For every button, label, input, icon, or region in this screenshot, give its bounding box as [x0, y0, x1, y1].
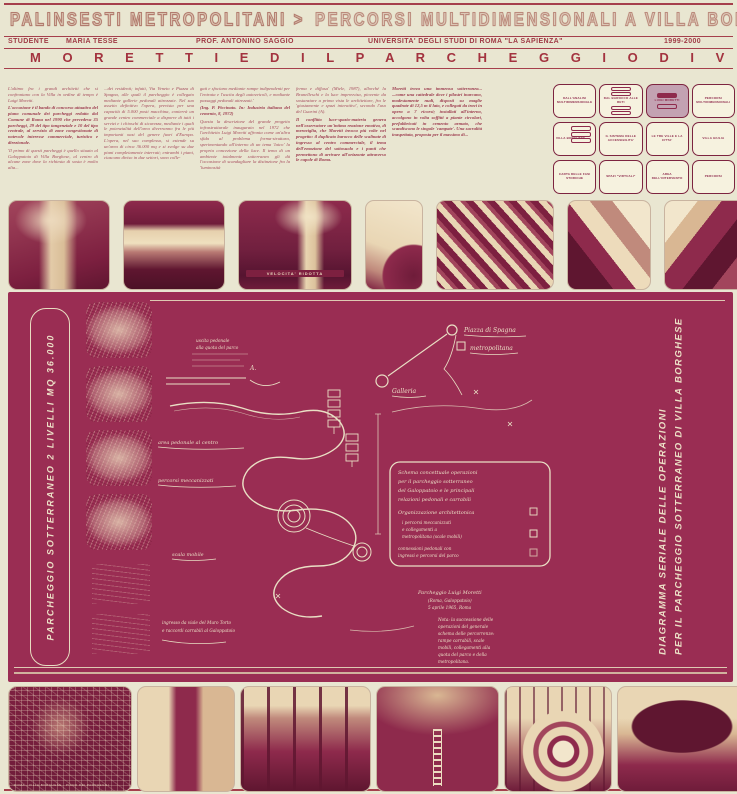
- photo-escalator-diagonal: [567, 200, 651, 290]
- paragraph: gati e sfociano mediante rampe indipende…: [200, 86, 290, 103]
- label-uscita-2: alla quota del parco: [196, 345, 239, 350]
- note-line: 5 aprile 1965, Roma: [428, 605, 472, 610]
- universita: UNIVERSITA' DEGLI STUDI DI ROMA "LA SAPI…: [368, 38, 563, 45]
- grid-cell-label: CARTA DELLE FASI STORICHE: [556, 173, 593, 180]
- grid-cell-label: SPAZI "VIRTUALI": [606, 175, 635, 179]
- note-line: rampe carrabili, scale: [438, 638, 485, 643]
- underline-squiggle: [392, 396, 426, 398]
- grid-cell-spazi-virtuali: SPAZI "VIRTUALI": [599, 160, 642, 194]
- left-vertical-text: PARCHEGGIO SOTTERRANEO 2 LIVELLI MQ 36.0…: [45, 334, 55, 641]
- right-vertical-label: DIAGRAMMA SERIALE DELLE OPERAZIONI PER I…: [655, 306, 689, 666]
- photo-strip-bottom: ROMA · VILLA BORGHESE · PIANO DEI PARCHE…: [8, 686, 737, 790]
- grid-cell-percorsi: PERCORSI: [692, 160, 735, 194]
- operations-diagram: Piazza di Spagna metropolitana Galleria …: [156, 294, 634, 678]
- legend-line: relazioni pedonali e carrabili: [398, 497, 471, 503]
- node-piazza-di-spagna: [447, 325, 457, 335]
- paragraph: 'Il primo di questi parcheggi è quello s…: [8, 148, 98, 171]
- link-path: [306, 528, 354, 546]
- legend-line: per il parcheggio sotterraneo: [398, 479, 473, 485]
- map-caption: ROMA · VILLA BORGHESE · PIANO DEI PARCHE…: [14, 783, 126, 787]
- meta-row: STUDENTE MARIA TESSE PROF. ANTONINO SAGG…: [0, 38, 737, 48]
- poster-title: PALINSESTI METROPOLITANI > PERCORSI MULT…: [10, 9, 729, 30]
- grid-cell-villa-borghese: VILLA BORGHESE: [553, 122, 596, 156]
- legend-swatch-outline: [530, 508, 537, 515]
- studente-name: MARIA TESSE: [66, 38, 118, 45]
- paragraph: Questa la descrizione del grande progett…: [200, 119, 290, 171]
- note-line: Parcheggio Luigi Moretti: [417, 590, 482, 596]
- underline-squiggle: [470, 353, 518, 355]
- photo-strip-top: VELOCITA' RIDOTTA: [8, 200, 737, 288]
- photo-garage-interior: [123, 200, 225, 290]
- note-line: quota del parco e della: [438, 652, 487, 657]
- grid-cell-accessibilita: IL SISTEMA DELLE ACCESSIBILITA': [599, 122, 642, 156]
- bottom-note-line: ingresso da viale del Muro Torto: [162, 620, 232, 625]
- label-metro: metropolitana: [470, 345, 513, 352]
- faint-sketch-1: [92, 564, 150, 604]
- mini-bar-icon: [611, 111, 631, 115]
- grid-cell-tre-ville: LE TRE VILLE E LA CITTA': [646, 122, 689, 156]
- note-line: mobili, collegamenti alla: [438, 645, 491, 650]
- paragraph: L'occasione è il bando di concorso attua…: [8, 105, 98, 145]
- right-vertical-line2: PER IL PARCHEGGIO SOTTERRANEO DI VILLA B…: [672, 317, 688, 654]
- legend-line: ingressi e percorsi del parco: [398, 553, 459, 558]
- spiral-ramp-1: [278, 500, 310, 532]
- studente-label: STUDENTE: [8, 38, 49, 45]
- photo-concrete-curve: [365, 200, 423, 290]
- grid-cell-villa-giulia: VILLA GIULIA: [692, 122, 735, 156]
- ladder-shape: [433, 729, 442, 786]
- poster-board: PALINSESTI METROPOLITANI > PERCORSI MULT…: [0, 0, 737, 794]
- note-line: schema delle percorrenze:: [438, 631, 495, 636]
- link-path: [444, 335, 462, 395]
- text-column-2: ...dei residenti; infatti, Via Veneto e …: [104, 86, 194, 198]
- note-line: metropolitana.: [438, 659, 469, 664]
- text-column-5: Moretti trova una immensa sotterranea...…: [392, 86, 482, 198]
- label-area-pedonale: area pedonale al centro: [158, 440, 218, 446]
- grid-cell-label: LE TRE VILLE E LA CITTA': [649, 135, 686, 142]
- underline-squiggle: [464, 335, 526, 337]
- intro-text-columns: L'ultimo fra i grandi architetti che si …: [8, 86, 490, 198]
- mini-bar-icon: [611, 87, 631, 91]
- main-diagram-panel: PARCHEGGIO SOTTERRANEO 2 LIVELLI MQ 36.0…: [8, 292, 733, 682]
- photo-city-map: ROMA · VILLA BORGHESE · PIANO DEI PARCHE…: [8, 686, 132, 792]
- text-column-1: L'ultimo fra i grandi architetti che si …: [8, 86, 98, 198]
- legend-line: i percorsi meccanizzati: [402, 520, 452, 525]
- photo-mushroom-ladder: [376, 686, 499, 792]
- legend-line: connessioni pedonali con: [398, 546, 452, 551]
- plan-sketch-level-1: [86, 302, 152, 358]
- speed-sign: VELOCITA' RIDOTTA: [246, 270, 345, 277]
- photo-circular-roof: [617, 686, 737, 792]
- mini-bar-stack: [571, 126, 591, 143]
- paragraph: L'ultimo fra i grandi architetti che si …: [8, 86, 98, 103]
- title-right: PERCORSI MULTIDIMENSIONALI A VILLA BORGH…: [315, 9, 737, 30]
- prof-name: PROF. ANTONINO SAGGIO: [196, 38, 294, 45]
- label-piazza: Piazza di Spagna: [463, 327, 516, 334]
- node-metro: [457, 342, 465, 350]
- grid-cell-label: DAL BAROCCO ALLE RETI: [602, 97, 639, 104]
- grid-cell-barocco: DAL BAROCCO ALLE RETI: [599, 84, 642, 118]
- header-rule-3: [4, 68, 733, 69]
- spiral-ramp-2: [353, 543, 371, 561]
- grid-cell-analisi: DALL'ANALISI MULTIDIMENSIONALE: [553, 84, 596, 118]
- anno: 1999-2000: [664, 38, 701, 45]
- paragraph: Il conflitto luce-spazio-materia genera …: [296, 117, 386, 163]
- paragraph: ferma e diffusa' (Miele, 1987), allorché…: [296, 86, 386, 115]
- top-frame-rule: [4, 3, 733, 5]
- photo-circular-formwork: [504, 686, 612, 792]
- left-vertical-frame: PARCHEGGIO SOTTERRANEO 2 LIVELLI MQ 36.0…: [30, 308, 70, 666]
- grid-cell-label: IL SISTEMA DELLE ACCESSIBILITA': [602, 135, 639, 142]
- header-rule-2: [4, 48, 733, 49]
- label-scala-mobile: scala mobile: [172, 552, 204, 558]
- legend-line: Organizzazione architettonica: [398, 510, 474, 516]
- grid-cell-label: LUIGI MORETTI: [655, 99, 680, 103]
- mini-bar-icon: [657, 104, 677, 109]
- label-a: A.: [249, 365, 256, 372]
- legend-swatch-half: [530, 549, 537, 556]
- plan-sketch-level-2: [86, 366, 152, 422]
- link-path: [388, 334, 447, 376]
- right-vertical-line1: DIAGRAMMA SERIALE DELLE OPERAZIONI: [656, 317, 672, 654]
- sketch-lines: [166, 378, 246, 384]
- link-path: [250, 380, 280, 386]
- sketch-lines: [192, 354, 248, 366]
- mini-bar-icon: [611, 106, 631, 110]
- underline-squiggle: [158, 447, 244, 449]
- plan-sketch-level-3: [86, 430, 152, 486]
- grid-cell-label: AREA DELL'INTERVENTO: [649, 173, 686, 180]
- mini-bar-icon: [571, 138, 591, 143]
- plan-sketch-level-4: [86, 494, 152, 550]
- label-galleria: Galleria: [392, 388, 417, 395]
- grid-cell-label: PERCORSI MULTIDIMENSIONALI: [695, 97, 732, 104]
- route-main: [170, 402, 356, 617]
- legend-swatch-filled: [530, 530, 537, 537]
- photo-column-detail: [137, 686, 235, 792]
- photo-construction-hall: [240, 686, 371, 792]
- mini-bar-icon: [571, 132, 591, 137]
- photo-garage-column-sign: VELOCITA' RIDOTTA: [238, 200, 352, 290]
- left-vertical-label: PARCHEGGIO SOTTERRANEO 2 LIVELLI MQ 36.0…: [31, 309, 69, 665]
- grid-cell-fasi-storiche: CARTA DELLE FASI STORICHE: [553, 160, 596, 194]
- underline-squiggle: [158, 485, 236, 487]
- note-line: Nota: la successione delle: [437, 617, 494, 622]
- grid-cell-label: VILLA GIULIA: [702, 137, 724, 141]
- grid-cell-moretti-active: LUIGI MORETTI: [646, 84, 689, 118]
- paragraph: Moretti trova una immensa sotterranea...…: [392, 86, 482, 138]
- faint-sketch-2: [92, 614, 150, 654]
- legend-line: e collegamenti a: [402, 527, 438, 532]
- bottom-note-line: e raccordi carrabili al Galoppatoio: [162, 628, 236, 633]
- grid-cell-area-intervento: AREA DELL'INTERVENTO: [646, 160, 689, 194]
- route-secondary: [392, 400, 532, 412]
- grid-cell-label: PERCORSI: [705, 175, 722, 179]
- mini-bar-icon: [571, 126, 591, 131]
- header-rule-1: [4, 36, 733, 37]
- board-index-grid: DALL'ANALISI MULTIDIMENSIONALE DAL BAROC…: [553, 84, 735, 196]
- title-left: PALINSESTI METROPOLITANI >: [10, 9, 305, 30]
- paragraph: ...dei residenti; infatti, Via Veneto e …: [104, 86, 194, 161]
- grid-cell-label: DALL'ANALISI MULTIDIMENSIONALE: [556, 97, 593, 104]
- underline-squiggle: [162, 640, 226, 644]
- legend-line: del Galoppatoio e le principali: [398, 488, 475, 494]
- underline-squiggle: [172, 559, 216, 561]
- photo-stairway: [436, 200, 554, 290]
- board-subtitle: M O R E T T I E D I L P A R C H E G G I …: [30, 50, 730, 65]
- note-line: operazioni del generale: [438, 624, 489, 629]
- label-percorsi-mecc: percorsi meccanizzati: [158, 478, 214, 484]
- grid-cell-percorsi-multi: PERCORSI MULTIDIMENSIONALI: [692, 84, 735, 118]
- legend-line: metropolitana (scale mobili): [402, 534, 462, 539]
- photo-escalator-close: [664, 200, 737, 290]
- dimension-line: [375, 414, 381, 534]
- route-secondary: [350, 626, 414, 631]
- photo-mushroom-column: [8, 200, 110, 290]
- node-galleria: [376, 375, 388, 387]
- label-uscita: uscita pedonale: [196, 338, 230, 343]
- note-line: (Roma, Galoppatoio): [428, 598, 472, 603]
- legend-line: Schema concettuale operazioni: [398, 470, 478, 476]
- paragraph: (Ing. P. Piccinato. In: Industria italia…: [200, 105, 290, 117]
- text-column-4: ferma e diffusa' (Miele, 1987), allorché…: [296, 86, 386, 198]
- text-column-3: gati e sfociano mediante rampe indipende…: [200, 86, 290, 198]
